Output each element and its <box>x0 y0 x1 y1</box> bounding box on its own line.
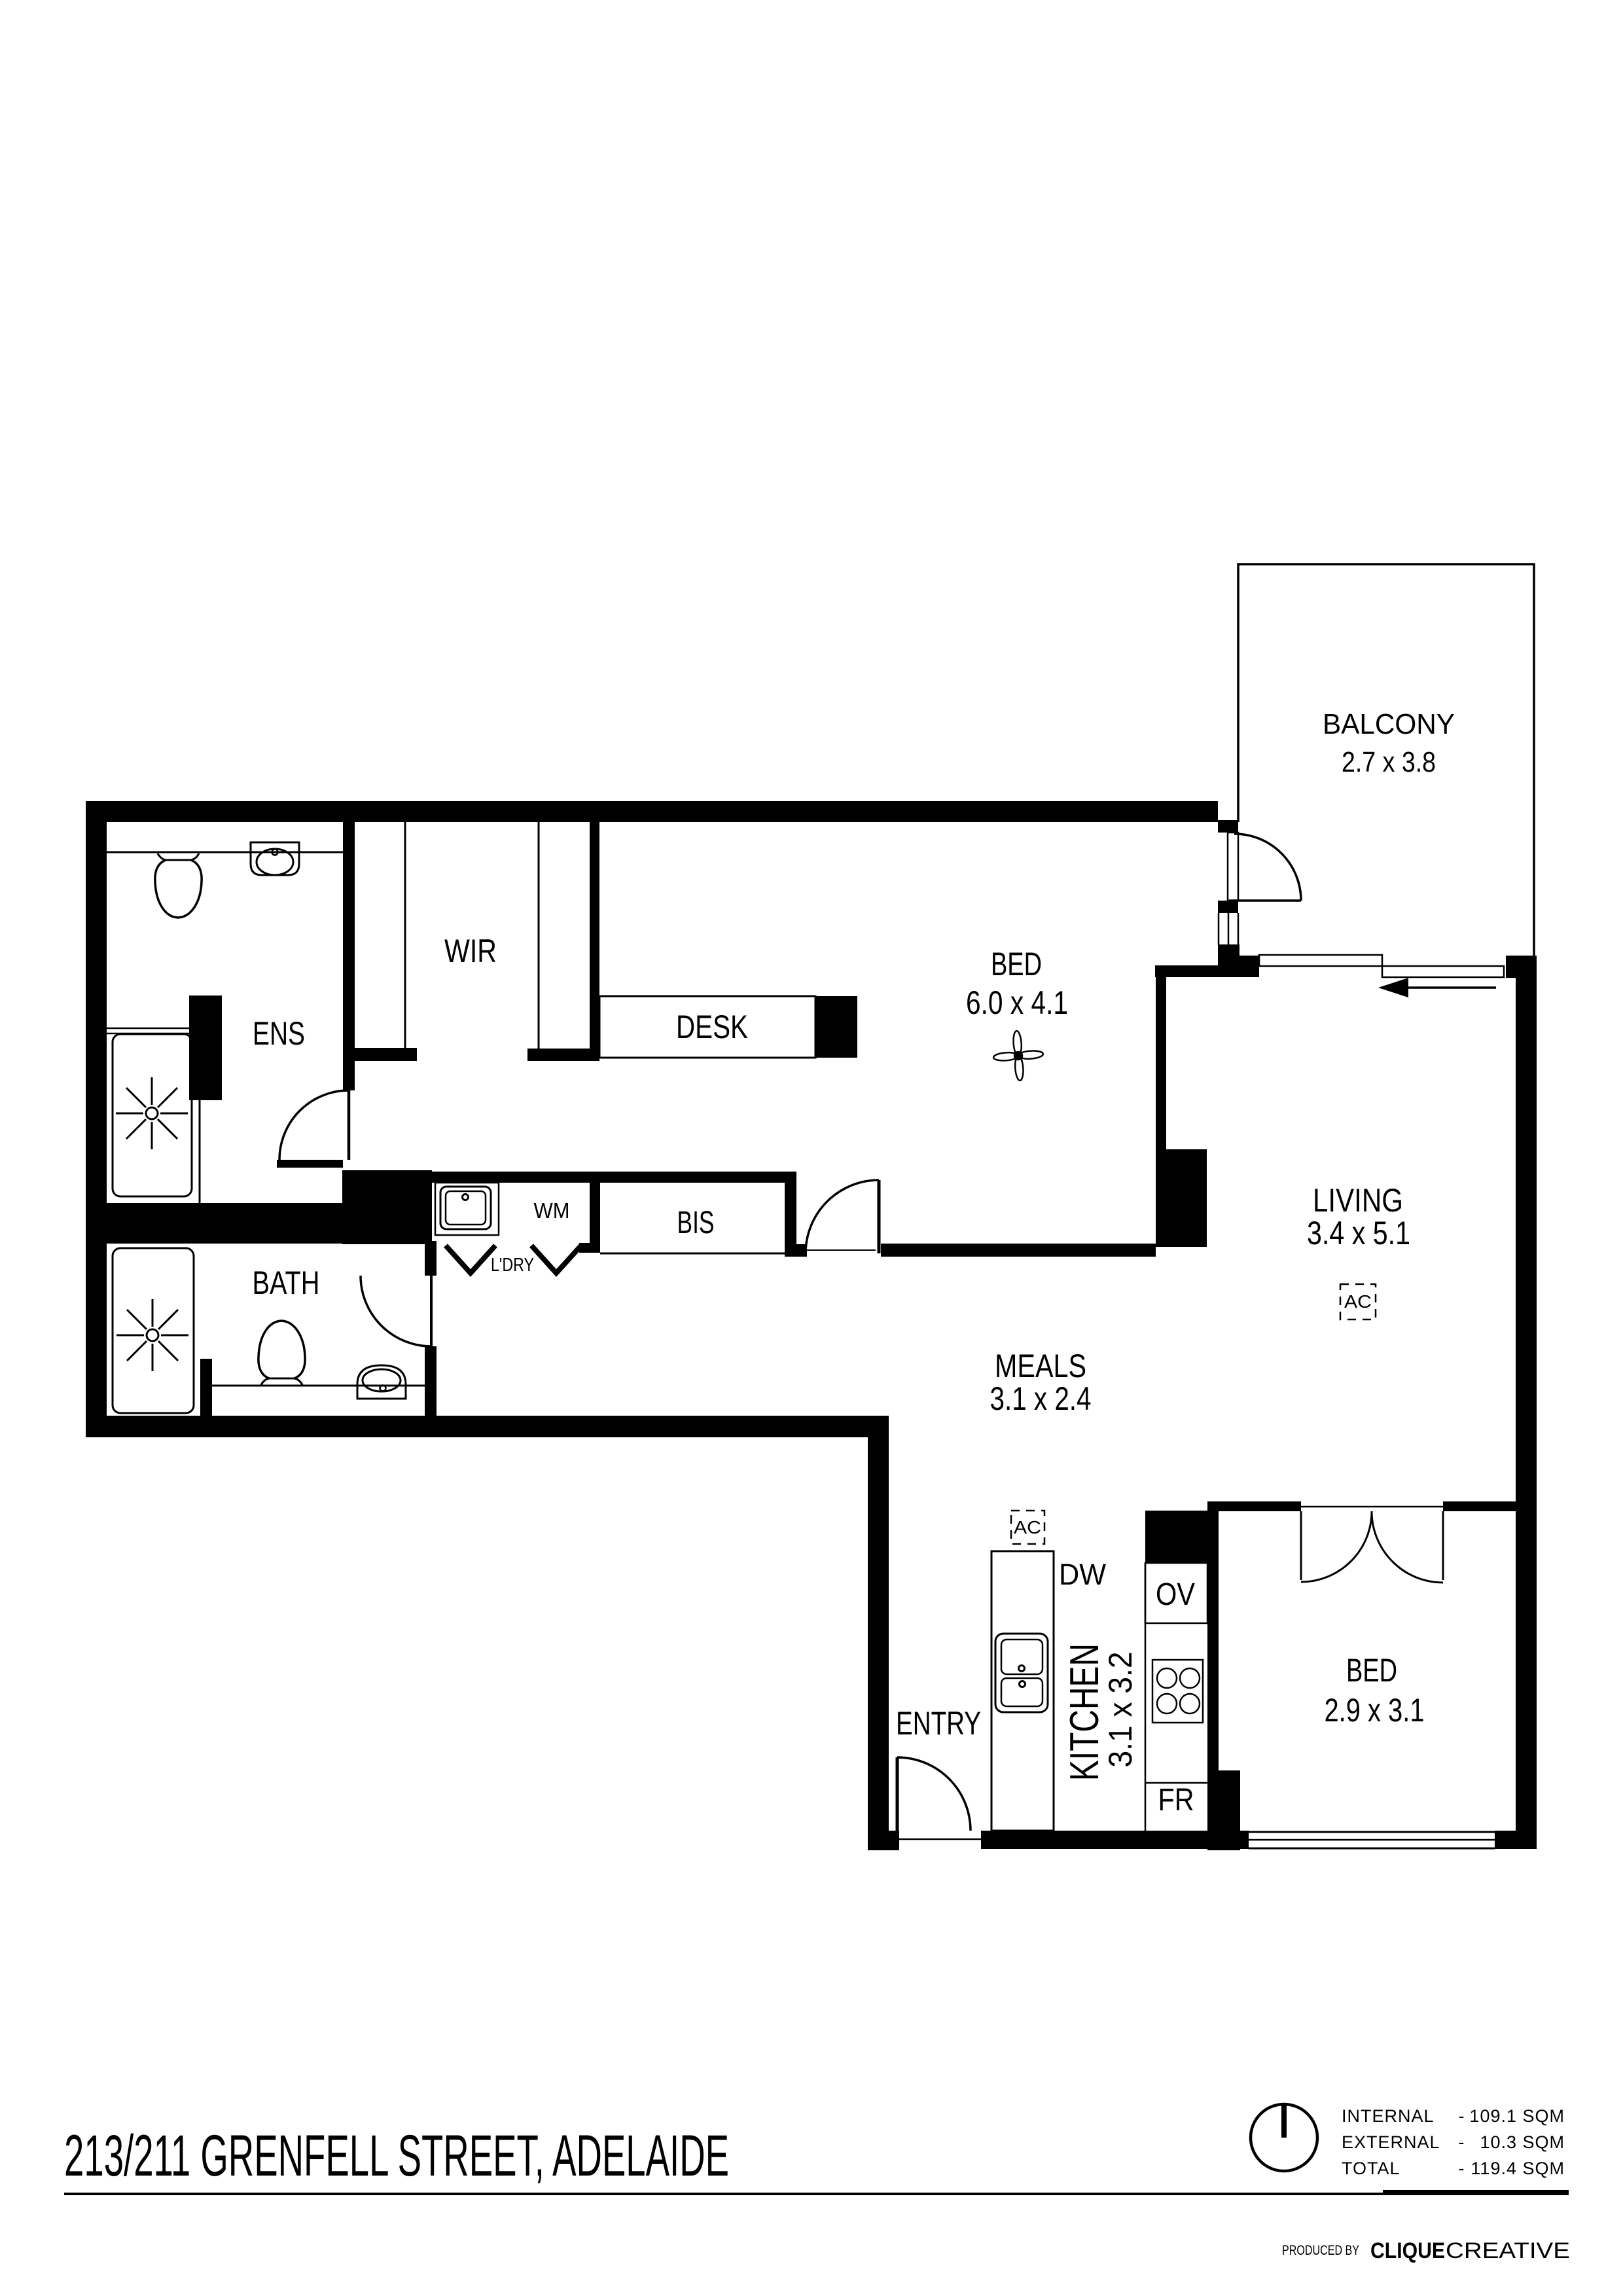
svg-text:OV: OV <box>1156 1577 1195 1612</box>
svg-text:3.1 x 3.2: 3.1 x 3.2 <box>1102 1652 1139 1768</box>
svg-text:INTERNAL: INTERNAL <box>1342 2106 1435 2126</box>
svg-text:LIVING: LIVING <box>1313 1182 1403 1219</box>
svg-text:3.1 x 2.4: 3.1 x 2.4 <box>990 1380 1092 1417</box>
svg-text:FR: FR <box>1158 1783 1194 1818</box>
svg-text:2.7 x 3.8: 2.7 x 3.8 <box>1342 746 1436 778</box>
svg-text:213/211 GRENFELL STREET, ADELA: 213/211 GRENFELL STREET, ADELAIDE <box>64 2123 729 2188</box>
svg-text:WM: WM <box>534 1198 570 1223</box>
svg-text:BIS: BIS <box>677 1206 715 1240</box>
svg-text:DW: DW <box>1059 1558 1106 1591</box>
svg-text:10.3 SQM: 10.3 SQM <box>1480 2132 1565 2152</box>
svg-text:109.1 SQM: 109.1 SQM <box>1469 2106 1565 2126</box>
svg-text:-: - <box>1459 2132 1465 2152</box>
svg-text:KITCHEN: KITCHEN <box>1062 1643 1107 1781</box>
svg-text:L'DRY: L'DRY <box>491 1255 534 1276</box>
svg-text:ENS: ENS <box>253 1015 305 1052</box>
svg-text:-: - <box>1459 2106 1465 2126</box>
svg-text:ENTRY: ENTRY <box>896 1705 981 1742</box>
svg-text:AC: AC <box>1344 1291 1372 1312</box>
svg-text:DESK: DESK <box>676 1009 748 1045</box>
svg-text:2.9 x 3.1: 2.9 x 3.1 <box>1325 1692 1425 1729</box>
svg-text:-: - <box>1459 2159 1465 2178</box>
svg-text:3.4 x 5.1: 3.4 x 5.1 <box>1307 1215 1410 1251</box>
svg-text:6.0 x 4.1: 6.0 x 4.1 <box>966 984 1068 1021</box>
svg-text:BATH: BATH <box>253 1265 320 1301</box>
svg-text:WIR: WIR <box>444 933 497 969</box>
svg-text:BED: BED <box>991 946 1042 982</box>
svg-text:CREATIVE: CREATIVE <box>1446 2238 1570 2263</box>
svg-text:BED: BED <box>1346 1652 1397 1689</box>
svg-text:CLIQUE: CLIQUE <box>1370 2238 1445 2263</box>
svg-text:MEALS: MEALS <box>995 1348 1086 1384</box>
svg-text:EXTERNAL: EXTERNAL <box>1342 2132 1440 2152</box>
svg-text:AC: AC <box>1014 1517 1041 1537</box>
svg-text:119.4 SQM: 119.4 SQM <box>1471 2159 1565 2178</box>
svg-text:PRODUCED BY: PRODUCED BY <box>1282 2243 1359 2258</box>
svg-text:BALCONY: BALCONY <box>1323 708 1455 740</box>
svg-text:TOTAL: TOTAL <box>1342 2159 1400 2178</box>
